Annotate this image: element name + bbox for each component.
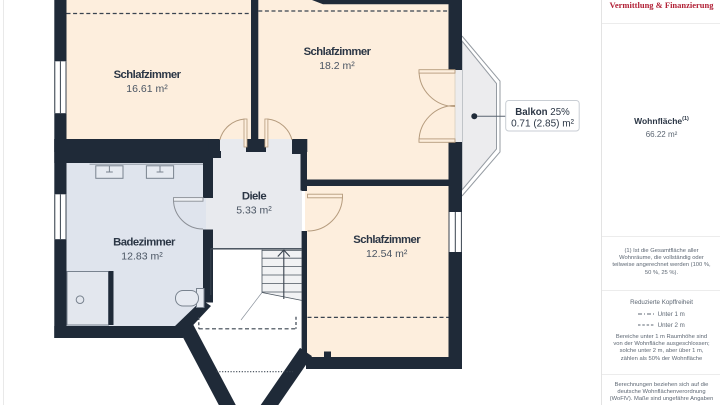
svg-text:18.2 m²: 18.2 m² bbox=[319, 60, 355, 72]
svg-text:12.83 m²: 12.83 m² bbox=[121, 251, 163, 263]
svg-text:Schlafzimmer: Schlafzimmer bbox=[353, 234, 421, 246]
svg-text:16.61 m²: 16.61 m² bbox=[126, 83, 168, 95]
svg-text:Schlafzimmer: Schlafzimmer bbox=[114, 69, 182, 81]
svg-text:Schlafzimmer: Schlafzimmer bbox=[304, 46, 372, 58]
svg-text:5.33 m²: 5.33 m² bbox=[236, 205, 272, 217]
svg-text:0.71 (2.85) m²: 0.71 (2.85) m² bbox=[511, 119, 574, 130]
svg-text:Diele: Diele bbox=[242, 191, 267, 203]
svg-text:Balkon 25%: Balkon 25% bbox=[515, 107, 570, 118]
svg-text:Badezimmer: Badezimmer bbox=[113, 237, 176, 249]
svg-text:12.54 m²: 12.54 m² bbox=[366, 248, 408, 260]
